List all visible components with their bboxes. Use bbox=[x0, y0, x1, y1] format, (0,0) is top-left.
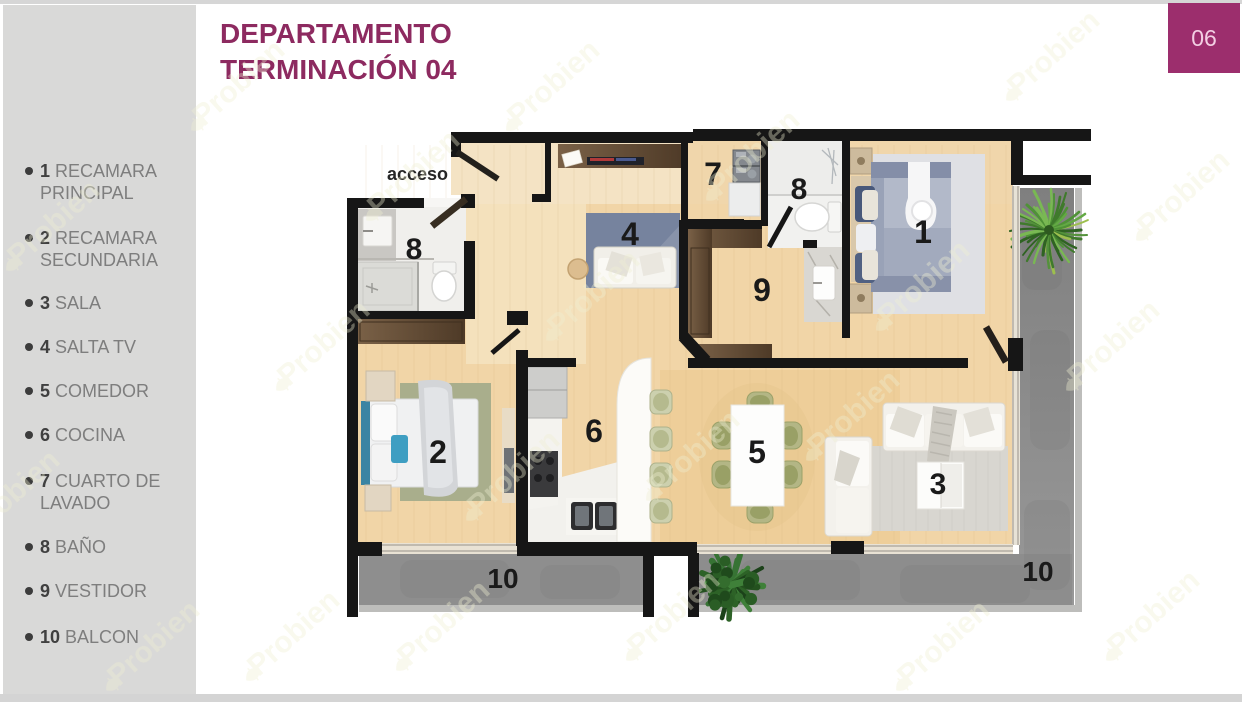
svg-text:6: 6 bbox=[585, 413, 603, 449]
svg-text:9 VESTIDOR: 9 VESTIDOR bbox=[40, 581, 147, 601]
svg-text:06: 06 bbox=[1191, 25, 1217, 51]
svg-text:8: 8 bbox=[406, 233, 423, 266]
svg-text:10 BALCON: 10 BALCON bbox=[40, 627, 139, 647]
svg-text:1: 1 bbox=[914, 214, 932, 250]
svg-text:3: 3 bbox=[930, 468, 947, 501]
svg-text:SECUNDARIA: SECUNDARIA bbox=[40, 250, 158, 270]
svg-text:8: 8 bbox=[791, 173, 808, 206]
svg-text:DEPARTAMENTO: DEPARTAMENTO bbox=[220, 18, 452, 49]
svg-text:2: 2 bbox=[429, 434, 447, 470]
svg-text:5 COMEDOR: 5 COMEDOR bbox=[40, 381, 149, 401]
svg-text:10: 10 bbox=[487, 563, 518, 594]
svg-text:10: 10 bbox=[1022, 556, 1053, 587]
svg-text:4 SALTA TV: 4 SALTA TV bbox=[40, 337, 136, 357]
svg-text:3 SALA: 3 SALA bbox=[40, 293, 101, 313]
svg-text:8 BAÑO: 8 BAÑO bbox=[40, 536, 106, 557]
svg-text:6 COCINA: 6 COCINA bbox=[40, 425, 125, 445]
svg-text:5: 5 bbox=[748, 434, 766, 470]
svg-text:1 RECAMARA: 1 RECAMARA bbox=[40, 161, 157, 181]
svg-text:LAVADO: LAVADO bbox=[40, 493, 110, 513]
svg-text:9: 9 bbox=[753, 272, 771, 308]
